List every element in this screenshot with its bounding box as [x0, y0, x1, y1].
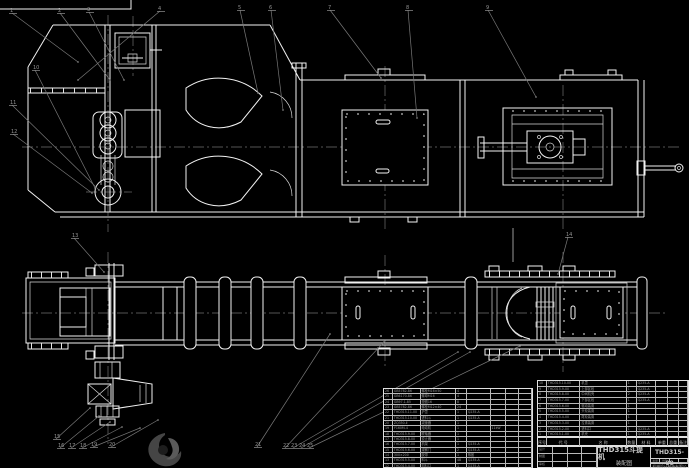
bom-cell: 联轴器 [421, 432, 457, 436]
bom-cell: 6 [538, 404, 547, 409]
company-name: 机械设计制造有限公司 [651, 464, 688, 468]
balloon-number: 15 [54, 434, 60, 440]
bom-table-right: 10THD315.10-00机罩1Q235-A9THD315.9-00上部区段1… [537, 380, 689, 437]
balloon-number: 6 [269, 5, 272, 11]
bom-cell [679, 415, 688, 420]
bom-cell: GB97.1-85 [393, 400, 421, 404]
bom-cell [656, 427, 668, 432]
bom-cell: THD315.6-00 [547, 404, 581, 409]
leader-dot [121, 426, 123, 428]
leader-dot [103, 271, 105, 273]
leader-line [74, 238, 104, 272]
gearbox [115, 33, 162, 68]
leader-line [12, 105, 99, 190]
bom-cell: THD315.8-00 [393, 437, 421, 441]
bom-cell: THD315.4-00 [547, 415, 581, 420]
bom-cell: 重量 [651, 459, 660, 462]
balloon-number: 10 [33, 65, 39, 71]
bom-cell [637, 421, 657, 426]
bom-cell [519, 437, 532, 441]
bom-cell: 螺栓M16×50 [421, 389, 457, 393]
bom-cell: 13 [384, 458, 393, 462]
bom-cell [506, 453, 519, 457]
bom-cell [467, 405, 491, 409]
tail-section-upper [478, 70, 622, 185]
leader-dot [123, 79, 125, 81]
bom-cell: THD315.5-00 [393, 458, 421, 462]
bom-cell [519, 400, 532, 404]
leader-dot [469, 351, 471, 353]
bom-cell [506, 400, 519, 404]
bom-cell [668, 392, 679, 397]
bom-cell: Q235-A [467, 410, 491, 414]
bom-cell: Q235-A [637, 381, 657, 386]
balloon-number: 21 [255, 442, 261, 448]
bom-cell: 11kW [491, 426, 507, 430]
drive-sprockets [93, 110, 160, 205]
bom-cell: 1 [456, 410, 467, 414]
balloon-number: 3 [87, 7, 90, 13]
drawing-number-cell: THD315-00 重量比例 机械设计制造有限公司 [651, 447, 688, 467]
bom-cell: 1 [627, 381, 637, 386]
bom-cell: 23 [384, 405, 393, 409]
bom-cell: 8 [456, 400, 467, 404]
bom-cell [668, 398, 679, 403]
bom-cell: 减速器 [421, 421, 457, 425]
bom-cell: 1 [627, 404, 637, 409]
balloon-number: 22 [283, 443, 289, 449]
bom-cell: 料斗 [421, 458, 457, 462]
bom-cell: 19 [384, 426, 393, 430]
bom-cell: GB5782-86 [393, 405, 421, 409]
bom-cell [506, 464, 519, 468]
bom-cell [519, 464, 532, 468]
watermark-blob [148, 433, 181, 466]
title-block: 设计制图审核 THD315斗提机 装配图 THD315-00 重量比例 机械设计… [537, 446, 689, 468]
bom-cell: 拉紧装置 [580, 421, 626, 426]
tail-plan [465, 266, 647, 360]
bom-cell: 5 [538, 409, 547, 414]
bom-cell [491, 421, 507, 425]
leader-dot [109, 79, 111, 81]
upper-view [28, 25, 683, 222]
leader-dot [383, 341, 385, 343]
bom-cell [637, 409, 657, 414]
bom-cell [679, 392, 688, 397]
bom-cell [679, 421, 688, 426]
bom-cell: 中间机壳 [580, 392, 626, 397]
bom-cell: Q235-A [637, 398, 657, 403]
bom-cell: 驱动装置 [580, 404, 626, 409]
bom-cell: 4 [538, 415, 547, 420]
bom-cell [568, 447, 583, 453]
bom-cell: 数量 [627, 438, 637, 446]
leader-dot [257, 92, 259, 94]
bom-cell [491, 448, 507, 452]
bom-cell [519, 416, 532, 420]
bom-cell [668, 409, 679, 414]
bom-cell: 1 [456, 453, 467, 457]
bom-cell: Q235-A [637, 392, 657, 397]
bom-cell: 4 [456, 389, 467, 393]
bom-cell [668, 387, 679, 392]
leader-line [56, 408, 90, 439]
bom-cell: ZQ350-Ⅱ [393, 421, 421, 425]
drawing-title-cell: THD315斗提机 装配图 [598, 447, 651, 467]
bom-cell [506, 410, 519, 414]
bom-cell [467, 394, 491, 398]
balloon-number: 18 [80, 443, 86, 449]
bom-cell: 22 [384, 410, 393, 414]
leader-dot [457, 351, 459, 353]
bom-cell: 单重 [656, 438, 668, 446]
bom-cell: 1 [627, 415, 637, 420]
bom-cell: 机架 [421, 442, 457, 446]
bom-cell: 2 [456, 448, 467, 452]
bom-cell [506, 437, 519, 441]
bom-cell: 名 称 [580, 438, 626, 446]
bom-cell: 16 [384, 442, 393, 446]
bom-cell [519, 458, 532, 462]
bom-cell: Q235-A [467, 442, 491, 446]
leader-dot [139, 427, 141, 429]
bom-cell: THD315.9-00 [393, 432, 421, 436]
bom-cell: 15 [384, 448, 393, 452]
bom-cell: 1 [627, 427, 637, 432]
bom-cell: 垫圈16 [421, 400, 457, 404]
bom-cell: THD315.6-00 [393, 448, 421, 452]
bom-cell: 逆止器 [421, 437, 457, 441]
bom-cell [491, 405, 507, 409]
balloon-number: 13 [72, 233, 78, 239]
bom-cell: THD315.9-00 [547, 387, 581, 392]
bom-cell: 进料斗 [421, 416, 457, 420]
bom-cell: 螺栓M12×40 [421, 405, 457, 409]
bom-cell [467, 389, 491, 393]
leader-dot [94, 187, 96, 189]
bom-cell [467, 426, 491, 430]
bom-cell: 300×200 [393, 453, 421, 457]
leader-line [13, 134, 92, 193]
balloon-number: 14 [566, 232, 572, 238]
leader-dot [416, 117, 418, 119]
bom-cell: 备注 [679, 438, 688, 446]
bom-cell [519, 410, 532, 414]
bom-cell: 10 [538, 381, 547, 386]
bom-cell [668, 415, 679, 420]
bom-cell [679, 404, 688, 409]
bom-cell: THD315.7-00 [547, 398, 581, 403]
bom-cell: 橡胶 [467, 453, 491, 457]
leader-dot [329, 333, 331, 335]
leader-dot [89, 407, 91, 409]
bom-cell: 螺母M16 [421, 394, 457, 398]
bom-cell [491, 442, 507, 446]
leader-dot [380, 77, 382, 79]
bom-cell: 代 号 [547, 438, 581, 446]
balloon-number: 19 [91, 442, 97, 448]
bom-cell: 护罩 [421, 410, 457, 414]
bom-cell: 12 [384, 464, 393, 468]
bom-cell [491, 400, 507, 404]
balloon-number: 23 [291, 443, 297, 449]
leader-dot [157, 419, 159, 421]
bom-cell: 1 [456, 437, 467, 441]
balloon-number: 16 [58, 443, 64, 449]
bom-cell: THD315.5-00 [547, 409, 581, 414]
balloon-number: 2 [58, 8, 61, 14]
bom-cell [656, 421, 668, 426]
bom-cell: Y160M-4 [393, 426, 421, 430]
leader-line [60, 13, 110, 80]
leader-dot [77, 79, 79, 81]
bom-cell: 17 [384, 437, 393, 441]
bom-cell [582, 454, 597, 460]
bom-cell: GB6170-86 [393, 394, 421, 398]
balloon-number: 25 [307, 443, 313, 449]
bom-cell [637, 415, 657, 420]
balloon-number: 9 [486, 5, 489, 11]
bom-cell: 8 [538, 392, 547, 397]
leader-line [240, 10, 258, 93]
bom-cell [656, 381, 668, 386]
bom-cell [491, 464, 507, 468]
bom-cell: THD315.8-00 [547, 392, 581, 397]
bom-cell [506, 448, 519, 452]
bom-cell [519, 389, 532, 393]
buckets [186, 78, 292, 206]
bom-cell: THD315.2-00 [547, 427, 581, 432]
leader-dot [282, 109, 284, 111]
leader-dot [98, 415, 100, 417]
bom-cell [656, 392, 668, 397]
bom-cell [582, 462, 597, 468]
signature-grid: 设计制图审核 [538, 447, 598, 467]
bom-cell [519, 442, 532, 446]
bom-cell [519, 394, 532, 398]
bom-cell: 卸料口 [421, 464, 457, 468]
bom-cell: 1 [627, 398, 637, 403]
bom-cell: Q235-A [467, 458, 491, 462]
bom-header-row: 序号代 号名 称数量材 料单重总重备注 [537, 437, 689, 446]
bom-cell: 总重 [668, 438, 679, 446]
bom-cell: 48 [456, 458, 467, 462]
bom-cell [679, 459, 688, 462]
bom-cell [506, 394, 519, 398]
bom-cell: 14 [384, 453, 393, 457]
bom-cell [491, 458, 507, 462]
bom-cell [568, 454, 583, 460]
bom-cell: 1 [627, 387, 637, 392]
bom-row: 重量比例 [651, 459, 688, 463]
bom-cell [491, 410, 507, 414]
bom-cell: 21 [384, 416, 393, 420]
bom-cell [467, 421, 491, 425]
bom-cell: 1 [456, 442, 467, 446]
leader-dot [557, 273, 559, 275]
bom-cell [506, 432, 519, 436]
leader-dot [91, 192, 93, 194]
bom-cell: 2 [627, 392, 637, 397]
bom-cell: 1 [456, 432, 467, 436]
bom-cell [679, 381, 688, 386]
bom-cell [656, 409, 668, 414]
leader-dot [519, 345, 521, 347]
bom-row: 制图 [538, 454, 597, 461]
bom-cell [506, 458, 519, 462]
bom-cell: 观察门 [421, 448, 457, 452]
balloon-number: 20 [109, 442, 115, 448]
bom-cell: 1 [456, 426, 467, 430]
balloon-number: 8 [406, 5, 409, 11]
bom-cell: 比例 [660, 459, 669, 462]
bom-cell [506, 442, 519, 446]
bom-cell: 审核 [538, 462, 553, 468]
bom-cell [637, 404, 657, 409]
head-plan [26, 263, 123, 360]
bom-cell: 序号 [538, 438, 547, 446]
balloon-number: 5 [238, 5, 241, 11]
bom-cell [656, 398, 668, 403]
bom-cell [506, 405, 519, 409]
balloon-number: 12 [11, 129, 17, 135]
bom-cell: GB5782-86 [393, 389, 421, 393]
bom-cell [668, 421, 679, 426]
bom-cell [656, 404, 668, 409]
bom-cell: 9 [538, 387, 547, 392]
bom-cell: THD315.10-00 [547, 381, 581, 386]
leader-line [330, 10, 381, 78]
leader-line [271, 10, 283, 110]
bom-cell: 1 [627, 421, 637, 426]
bom-cell [553, 454, 568, 460]
balloon-number: 4 [158, 6, 161, 12]
bom-cell [582, 447, 597, 453]
bom-cell: Q235-A [467, 416, 491, 420]
bom-row: 设计 [538, 447, 597, 454]
bom-cell [491, 453, 507, 457]
balloon-number: 17 [69, 443, 75, 449]
bom-cell [491, 432, 507, 436]
bom-cell: 24 [456, 405, 467, 409]
balloon-number: 7 [328, 5, 331, 11]
leader-line [488, 10, 536, 97]
bom-cell: THD315.11-00 [393, 410, 421, 414]
bom-cell: Q235-A [467, 464, 491, 468]
frame-corner-mark [0, 0, 131, 9]
drawing-type: 装配图 [616, 461, 633, 467]
bom-cell [491, 416, 507, 420]
drive-plan [88, 362, 152, 425]
bom-cell [519, 405, 532, 409]
bom-cell: Q235-A [467, 448, 491, 452]
bom-cell: 2 [538, 427, 547, 432]
bom-cell: Q235-A [637, 427, 657, 432]
leader-line [285, 342, 384, 448]
bom-cell [670, 459, 679, 462]
balloon-number: 24 [299, 443, 305, 449]
bom-cell [519, 448, 532, 452]
bom-cell [668, 427, 679, 432]
bom-cell: 20 [384, 421, 393, 425]
bom-cell [668, 381, 679, 386]
bom-cell: 头轮装置 [580, 409, 626, 414]
bom-cell [553, 462, 568, 468]
bom-cell: 25 [384, 394, 393, 398]
balloon-layer: 1234567891011121314151617181920212223242… [9, 5, 573, 449]
leader-line [12, 13, 78, 62]
bom-cell [656, 415, 668, 420]
bom-cell [679, 398, 688, 403]
bom-cell: 设计 [538, 447, 553, 453]
bom-cell: 上部区段 [580, 387, 626, 392]
bom-cell [519, 426, 532, 430]
leader-line [408, 10, 417, 118]
head-ladder [28, 88, 105, 93]
leader-line [257, 334, 330, 447]
bom-cell: 机罩 [580, 381, 626, 386]
drawing-number: THD315-00 [651, 447, 688, 459]
bom-cell [519, 421, 532, 425]
bom-cell [506, 416, 519, 420]
bom-cell [553, 447, 568, 453]
bom-cell: 电动机 [421, 426, 457, 430]
bom-cell: 18 [384, 432, 393, 436]
bom-row: 审核 [538, 462, 597, 468]
leader-dot [77, 61, 79, 63]
bom-cell [679, 387, 688, 392]
bom-cell: 3 [538, 421, 547, 426]
bom-cell: 24 [384, 400, 393, 404]
bom-cell [506, 421, 519, 425]
bom-row: 12THD315.4-00卸料口1Q235-A [384, 464, 532, 468]
bom-cell: Q235-A [637, 387, 657, 392]
leader-dot [109, 421, 111, 423]
product-name: THD315斗提机 [598, 447, 650, 462]
leader-dot [535, 96, 537, 98]
bom-cell: 1 [456, 416, 467, 420]
bom-cell [467, 437, 491, 441]
bom-cell [491, 394, 507, 398]
bom-cell [668, 404, 679, 409]
bom-cell: 1 [627, 409, 637, 414]
bom-cell: 进料口 [580, 427, 626, 432]
bom-cell: 胶带 [421, 453, 457, 457]
bom-cell [491, 389, 507, 393]
bom-cell: 下部区段 [580, 398, 626, 403]
cad-drawing-screenshot: 1234567891011121314151617181920212223242… [0, 0, 689, 468]
bom-cell [679, 427, 688, 432]
balloon-number: 1 [10, 8, 13, 14]
bom-cell: THD315.10-00 [393, 416, 421, 420]
bom-cell [491, 437, 507, 441]
bom-cell: THD315.4-00 [393, 464, 421, 468]
bom-cell: THD315.7-00 [393, 442, 421, 446]
bom-cell [467, 432, 491, 436]
bom-cell: 26 [384, 389, 393, 393]
bom-cell [519, 453, 532, 457]
bom-table-left: 26GB5782-86螺栓M16×50425GB6170-86螺母M16424G… [383, 388, 533, 468]
bom-cell: 1 [456, 464, 467, 468]
bom-cell: 7 [538, 398, 547, 403]
bom-cell: 材 料 [637, 438, 657, 446]
bom-cell [506, 389, 519, 393]
balloon-number: 11 [10, 100, 16, 106]
bom-cell: THD315.3-00 [547, 421, 581, 426]
bom-cell: 1 [456, 421, 467, 425]
bom-cell [656, 387, 668, 392]
bom-cell [506, 426, 519, 430]
